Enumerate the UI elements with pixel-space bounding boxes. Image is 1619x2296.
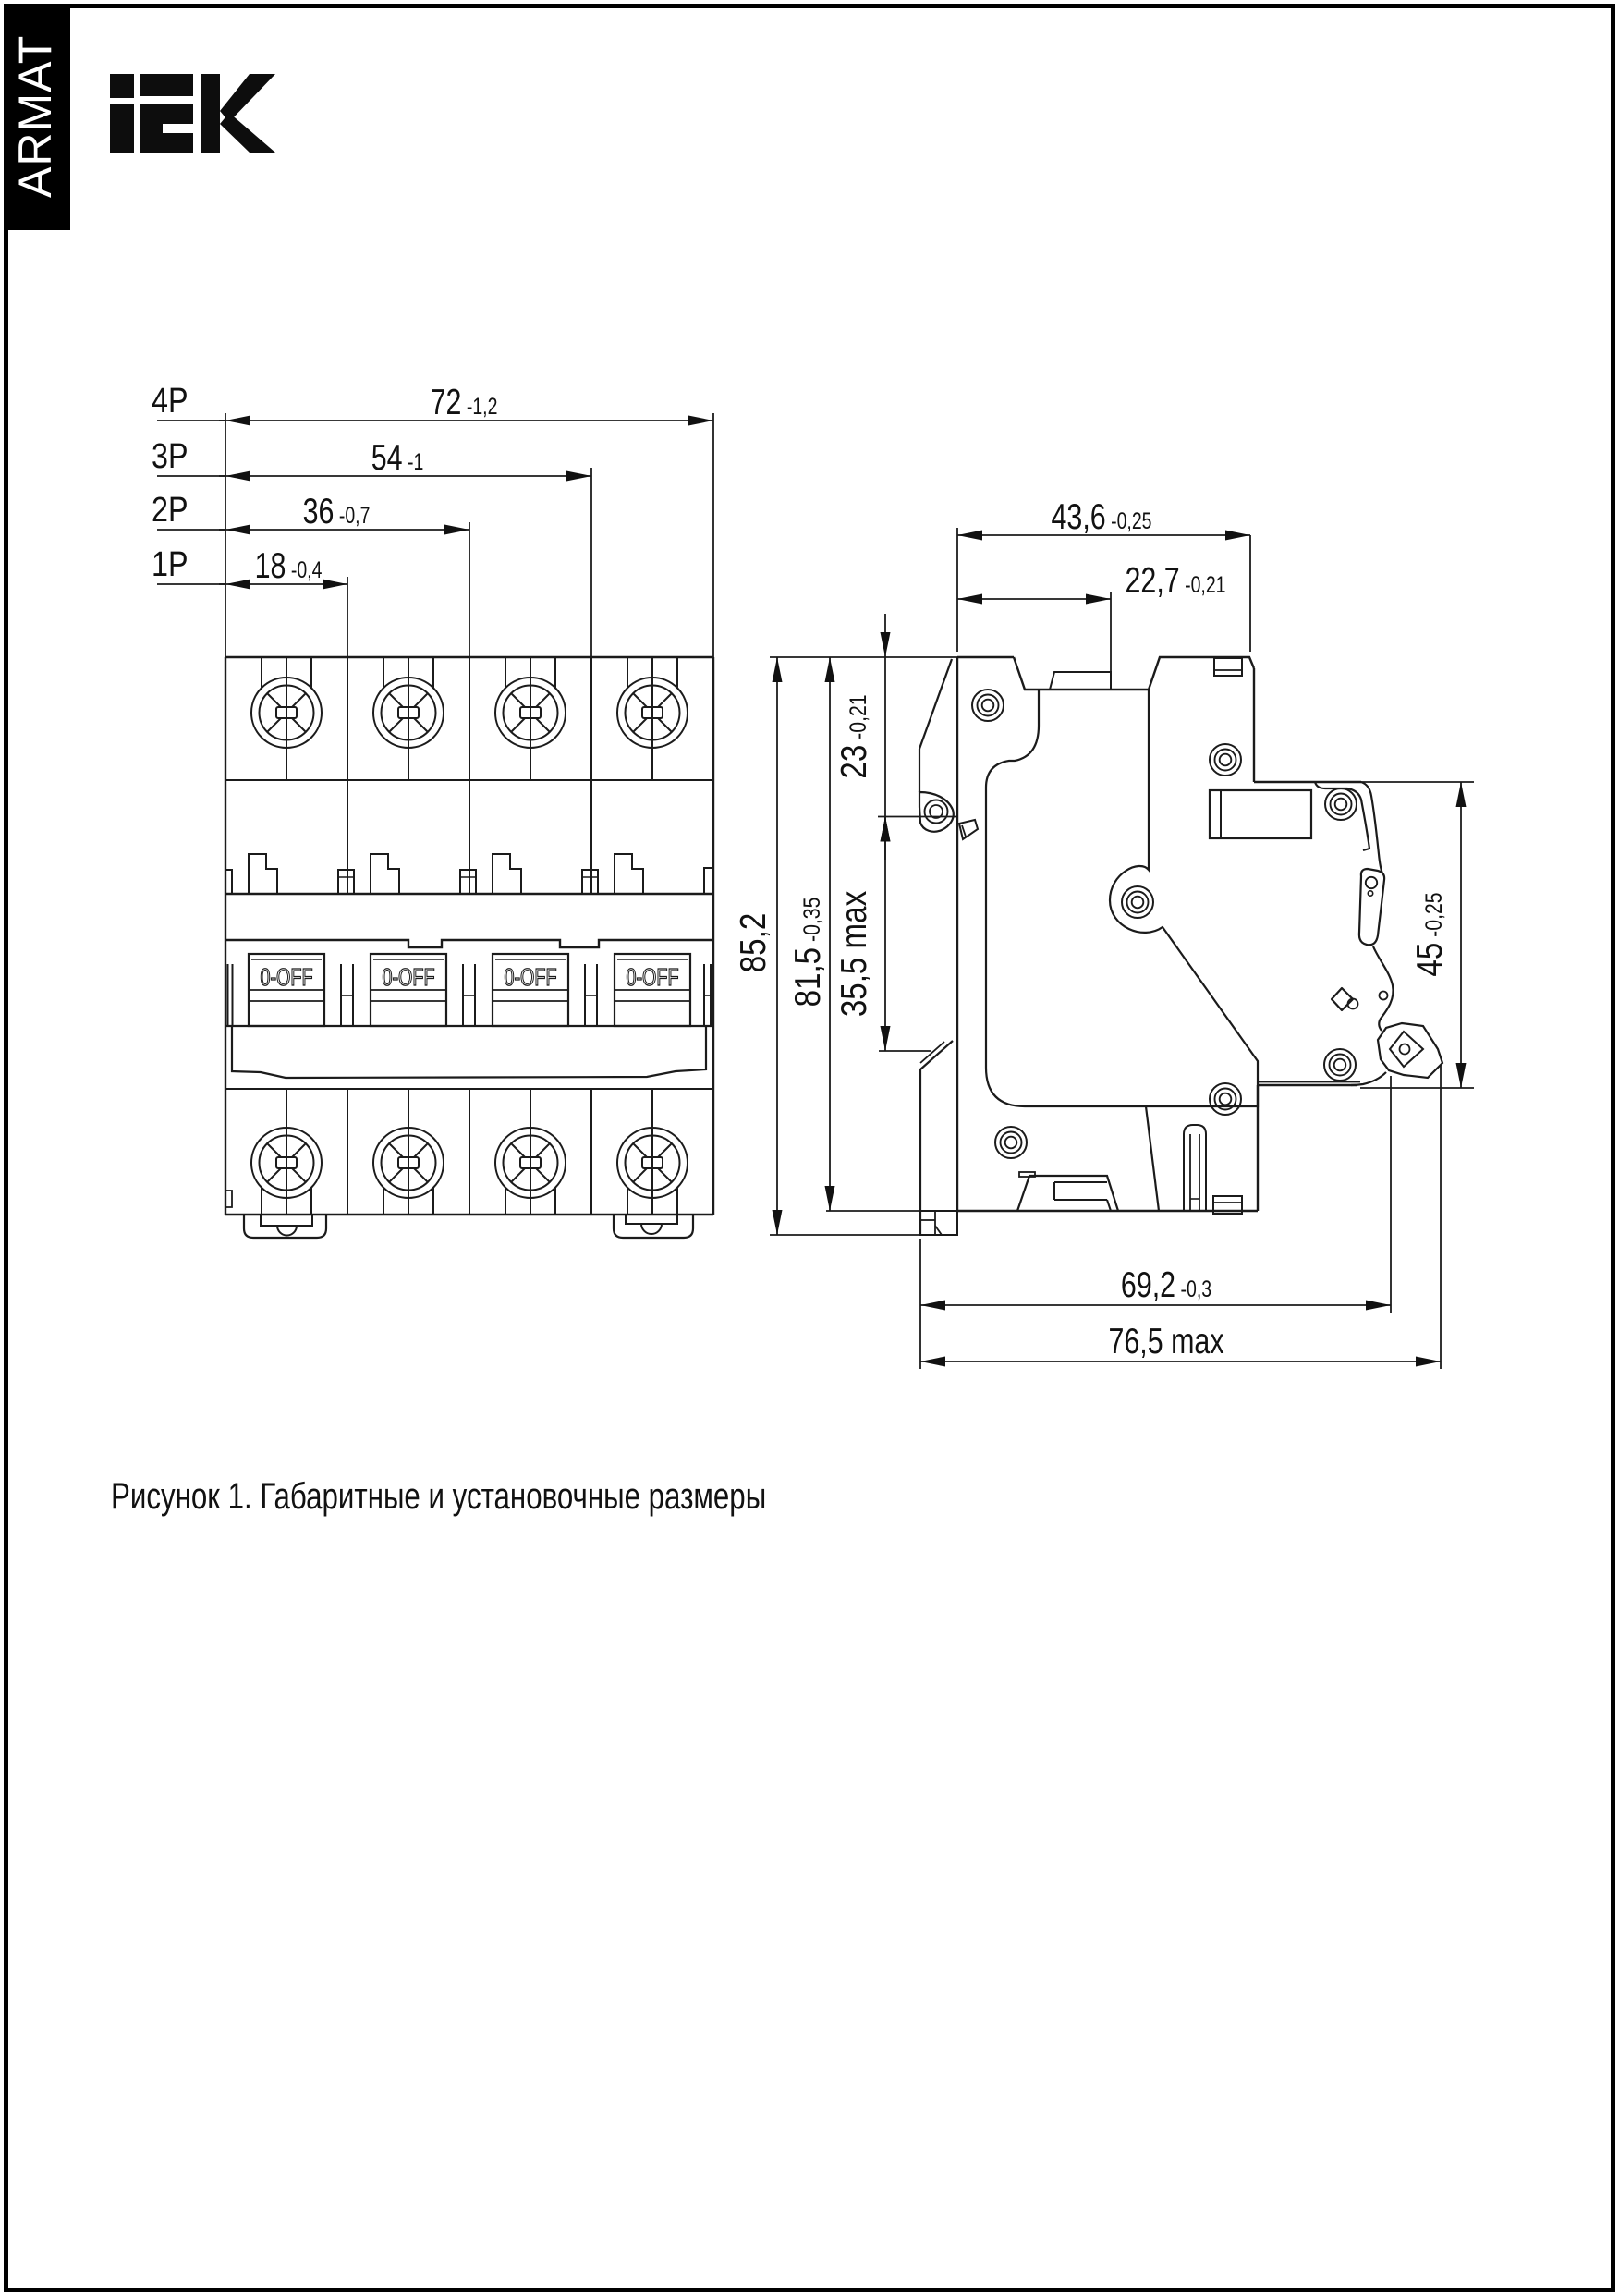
svg-text:76,5 max: 76,5 max bbox=[1108, 1321, 1224, 1361]
svg-text:0-OFF: 0-OFF bbox=[260, 963, 312, 990]
svg-text:2P: 2P bbox=[152, 491, 188, 530]
svg-text:35,5 max: 35,5 max bbox=[833, 891, 873, 1017]
svg-text:3P: 3P bbox=[152, 437, 188, 476]
svg-text:0-OFF: 0-OFF bbox=[504, 963, 556, 990]
svg-text:4P: 4P bbox=[152, 382, 188, 421]
svg-text:1P: 1P bbox=[152, 545, 188, 584]
svg-text:0-OFF: 0-OFF bbox=[382, 963, 434, 990]
svg-text:85,2: 85,2 bbox=[732, 913, 773, 973]
svg-text:ARMAT: ARMAT bbox=[9, 35, 61, 198]
svg-text:0-OFF: 0-OFF bbox=[626, 963, 678, 990]
svg-text:Рисунок 1. Габаритные и устано: Рисунок 1. Габаритные и установочные раз… bbox=[111, 1475, 766, 1517]
